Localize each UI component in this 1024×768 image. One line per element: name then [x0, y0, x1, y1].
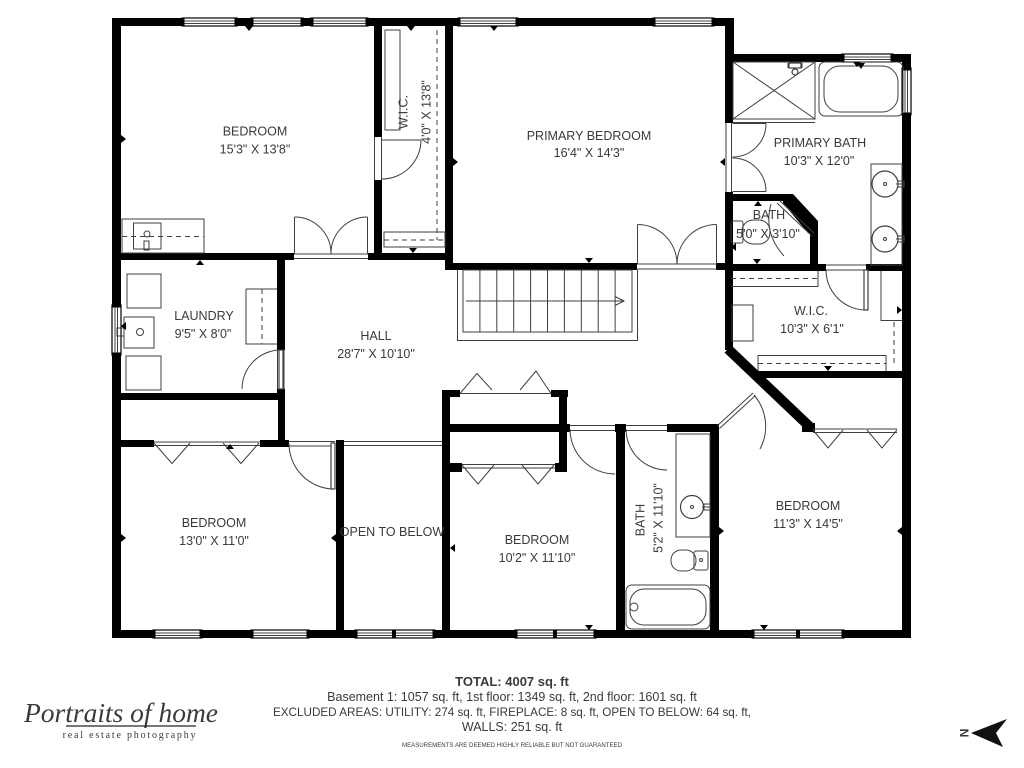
svg-text:BEDROOM: BEDROOM	[182, 516, 247, 530]
svg-text:N: N	[957, 729, 971, 738]
svg-text:BEDROOM: BEDROOM	[776, 499, 841, 513]
svg-text:13'0" X 11'0": 13'0" X 11'0"	[179, 534, 249, 548]
svg-text:TOTAL: 4007 sq. ft: TOTAL: 4007 sq. ft	[455, 674, 569, 689]
svg-text:10'3" X 12'0": 10'3" X 12'0"	[784, 154, 855, 168]
svg-text:10'2" X 11'10": 10'2" X 11'10"	[499, 551, 576, 565]
svg-text:4'0" X 13'8": 4'0" X 13'8"	[419, 80, 433, 144]
svg-text:BEDROOM: BEDROOM	[505, 533, 570, 547]
svg-text:16'4" X 14'3": 16'4" X 14'3"	[554, 146, 625, 160]
svg-text:Portraits of home: Portraits of home	[23, 697, 218, 728]
svg-text:10'3" X 6'1": 10'3" X 6'1"	[780, 322, 844, 336]
svg-text:Basement 1: 1057 sq. ft, 1st f: Basement 1: 1057 sq. ft, 1st floor: 1349…	[327, 690, 697, 704]
svg-text:5'2" X 11'10": 5'2" X 11'10"	[651, 483, 665, 553]
svg-text:OPEN TO BELOW: OPEN TO BELOW	[340, 525, 445, 539]
svg-text:MEASUREMENTS ARE DEEMED HIGHLY: MEASUREMENTS ARE DEEMED HIGHLY RELIABLE …	[402, 742, 623, 749]
svg-text:PRIMARY BEDROOM: PRIMARY BEDROOM	[527, 129, 652, 143]
svg-text:W.I.C.: W.I.C.	[396, 95, 410, 129]
svg-text:15'3" X 13'8": 15'3" X 13'8"	[220, 143, 291, 157]
svg-text:W.I.C.: W.I.C.	[794, 304, 828, 318]
svg-text:BEDROOM: BEDROOM	[223, 125, 288, 139]
svg-text:WALLS: 251 sq. ft: WALLS: 251 sq. ft	[462, 720, 563, 734]
svg-text:LAUNDRY: LAUNDRY	[174, 309, 234, 323]
svg-text:BATH: BATH	[753, 208, 785, 222]
svg-text:11'3" X 14'5": 11'3" X 14'5"	[773, 517, 843, 531]
svg-text:EXCLUDED AREAS: UTILITY: 274 s: EXCLUDED AREAS: UTILITY: 274 sq. ft, FIR…	[273, 706, 751, 719]
svg-text:28'7" X 10'10": 28'7" X 10'10"	[337, 347, 415, 361]
svg-text:5'0" X 3'10": 5'0" X 3'10"	[736, 227, 800, 241]
svg-text:PRIMARY BATH: PRIMARY BATH	[774, 136, 866, 150]
svg-text:BATH: BATH	[633, 504, 647, 536]
svg-text:HALL: HALL	[360, 329, 391, 343]
svg-text:9'5" X 8'0": 9'5" X 8'0"	[175, 327, 232, 341]
svg-text:real estate photography: real estate photography	[63, 730, 198, 741]
